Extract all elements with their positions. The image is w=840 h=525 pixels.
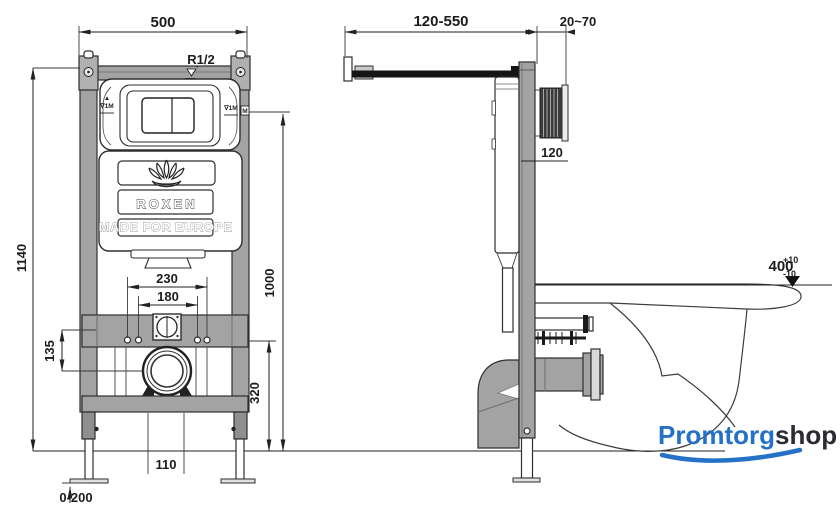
- support-rod: [352, 71, 514, 78]
- dim-20-70-label: 20~70: [560, 14, 597, 29]
- installation-frame-drawing: 400 +10 -10 120-550 20~70 120: [0, 0, 840, 525]
- tank-tab: [492, 139, 496, 149]
- level-label-right: ∇1M: [223, 104, 237, 112]
- watermark-logo: Promtorgshop: [658, 420, 837, 461]
- dim-1140: 1140: [14, 68, 80, 451]
- dim-20-70: 20~70: [528, 14, 596, 85]
- dim-110-label: 110: [156, 457, 177, 472]
- left-foot: [85, 439, 93, 479]
- flush-bend: [145, 258, 191, 268]
- dim-120-label: 120: [541, 145, 563, 160]
- m-marker-label: M: [242, 108, 247, 115]
- flush-pipe-side: [503, 268, 514, 332]
- top-rail: [80, 66, 249, 80]
- logo-icon-box: [118, 161, 215, 185]
- leg-pin-hole: [524, 428, 530, 434]
- left-leg: [82, 412, 95, 439]
- dim-110: 110: [148, 413, 184, 474]
- outlet-pipe: [535, 349, 603, 400]
- tank-tab: [492, 101, 496, 115]
- dim-1000: 1000: [262, 114, 283, 451]
- brand-tagline: MADE FOR EUROPE: [99, 220, 233, 235]
- side-view: 400 +10 -10 120-550 20~70 120: [344, 13, 832, 482]
- wall-sleeve: [535, 85, 568, 141]
- watermark-part1: Promtorg: [658, 420, 775, 450]
- level-label-left: ∇1M: [99, 102, 113, 110]
- hanger-tab-right: [236, 51, 245, 58]
- foot-plate-left: [70, 479, 108, 483]
- foot-plate-right: [221, 479, 255, 483]
- svg-text:Promtorgshop: Promtorgshop: [658, 420, 837, 450]
- dim-400: 400 +10 -10: [768, 255, 800, 287]
- dim-120-550-label: 120-550: [413, 13, 468, 30]
- dim-135-label: 135: [42, 340, 57, 362]
- drain-elbow: [478, 360, 519, 448]
- dim-180-label: 180: [157, 289, 179, 304]
- dim-500: 500: [79, 14, 247, 58]
- dim-320: 320: [247, 341, 276, 451]
- leg-lock-knob: [94, 427, 98, 431]
- right-leg: [234, 412, 247, 439]
- foot-side: [522, 438, 533, 478]
- hanger-tab-left: [84, 51, 93, 58]
- watermark-part2: shop: [775, 420, 837, 450]
- dim-1000-label: 1000: [262, 269, 277, 298]
- inlet-thread-label: R1/2: [187, 52, 214, 67]
- dim-0-200: 0-200: [59, 483, 92, 505]
- level-mark-icon: ▲: [104, 95, 110, 102]
- dim-1140-label: 1140: [14, 244, 29, 272]
- cistern-front: ROXEN MADE FOR EUROPE: [99, 151, 242, 268]
- leg-lock-knob: [231, 427, 235, 431]
- tank-bottom-lip: [131, 250, 205, 258]
- foot-plate-side: [513, 478, 540, 482]
- watermark-swoosh: [662, 450, 800, 461]
- front-view: R1/2 ▲ ∇1M ∇1M M: [14, 14, 290, 505]
- brand-logo-text: ROXEN: [136, 197, 197, 212]
- mounting-studs: [533, 315, 593, 345]
- technical-drawing-page: 400 +10 -10 120-550 20~70 120: [0, 0, 840, 525]
- dim-230-label: 230: [156, 271, 178, 286]
- drain-circle: [143, 347, 191, 395]
- left-rail: [80, 57, 97, 412]
- flush-plate-assembly: ▲ ∇1M ∇1M: [99, 79, 240, 150]
- dim-120-550: 120-550: [345, 13, 537, 64]
- dim-400-tol-minus: -10: [783, 269, 796, 279]
- dim-400-tol-plus: +10: [783, 255, 798, 265]
- dim-500-label: 500: [150, 14, 175, 31]
- wall-bracket: [344, 57, 352, 81]
- flush-buttons: [142, 98, 194, 133]
- bottom-rail: [82, 396, 248, 412]
- dim-320-label: 320: [247, 382, 262, 404]
- right-foot: [236, 439, 244, 479]
- dim-0-200-label: 0-200: [59, 490, 92, 505]
- cistern-side: [495, 77, 519, 253]
- crossbar: [82, 314, 248, 347]
- frame-post-side: [519, 62, 535, 438]
